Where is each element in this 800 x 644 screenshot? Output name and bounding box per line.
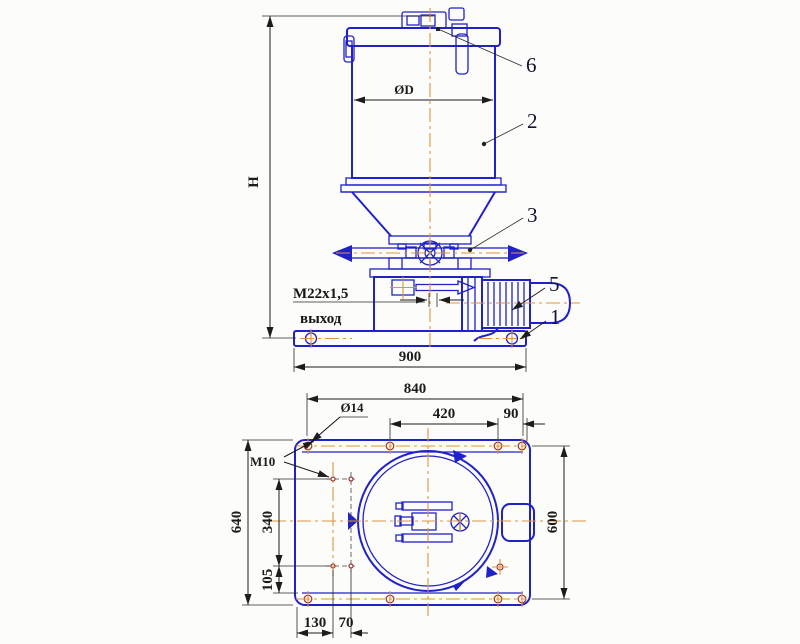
dim-H-text: H bbox=[246, 176, 262, 188]
outlet-callout: М22х1,5 выход bbox=[293, 286, 464, 327]
outlet-label-text: выход bbox=[300, 311, 342, 327]
dim-420-90: 420 90 bbox=[390, 406, 545, 441]
flow-arrow bbox=[416, 281, 474, 294]
dim-600: 600 bbox=[532, 446, 570, 599]
dim-D-text: ØD bbox=[394, 82, 414, 97]
plan-view: 840 420 90 Ø14 M10 640 bbox=[229, 381, 588, 638]
dim-70-text: 70 bbox=[339, 615, 354, 631]
dim-base-width: 900 bbox=[294, 348, 526, 372]
callout-dia-text: Ø14 bbox=[340, 400, 364, 415]
dim-840: 840 bbox=[307, 381, 523, 436]
dim-reservoir-diameter: ØD bbox=[354, 82, 493, 100]
dim-900-text: 900 bbox=[399, 349, 422, 365]
hopper-cone bbox=[341, 192, 506, 236]
dim-130-text: 130 bbox=[304, 615, 327, 631]
callout-m10: M10 bbox=[250, 441, 329, 477]
dim-640-text: 640 bbox=[229, 511, 245, 534]
callout-hole-dia: Ø14 bbox=[311, 400, 368, 442]
dim-90-text: 90 bbox=[504, 406, 519, 422]
front-view: H ØD М22х1,5 выход 900 6 bbox=[246, 8, 580, 372]
technical-drawing: H ØD М22х1,5 выход 900 6 bbox=[0, 0, 800, 644]
dim-600-text: 600 bbox=[545, 511, 561, 534]
ref-base-plate: 1 bbox=[550, 305, 561, 329]
pump-mechanism-top bbox=[395, 502, 469, 542]
ref-filler-cap: 6 bbox=[526, 53, 537, 77]
reservoir bbox=[341, 28, 506, 192]
pump-body bbox=[374, 277, 474, 331]
part-labels: 6 2 3 5 1 bbox=[436, 27, 561, 339]
dim-340-text: 340 bbox=[260, 511, 276, 534]
drawing-canvas: H ØD М22х1,5 выход 900 6 bbox=[0, 0, 800, 644]
dim-840-text: 840 bbox=[404, 381, 427, 397]
thread-callout-text: М22х1,5 bbox=[293, 286, 348, 302]
dim-420-text: 420 bbox=[433, 406, 456, 422]
dim-105-text: 105 bbox=[260, 569, 276, 592]
filler-cap bbox=[402, 8, 464, 28]
ref-reservoir: 2 bbox=[527, 109, 538, 133]
handle-bracket bbox=[344, 24, 468, 74]
ref-motor: 5 bbox=[549, 272, 560, 296]
ref-distributor: 3 bbox=[527, 203, 538, 227]
callout-m10-text: M10 bbox=[250, 454, 275, 469]
